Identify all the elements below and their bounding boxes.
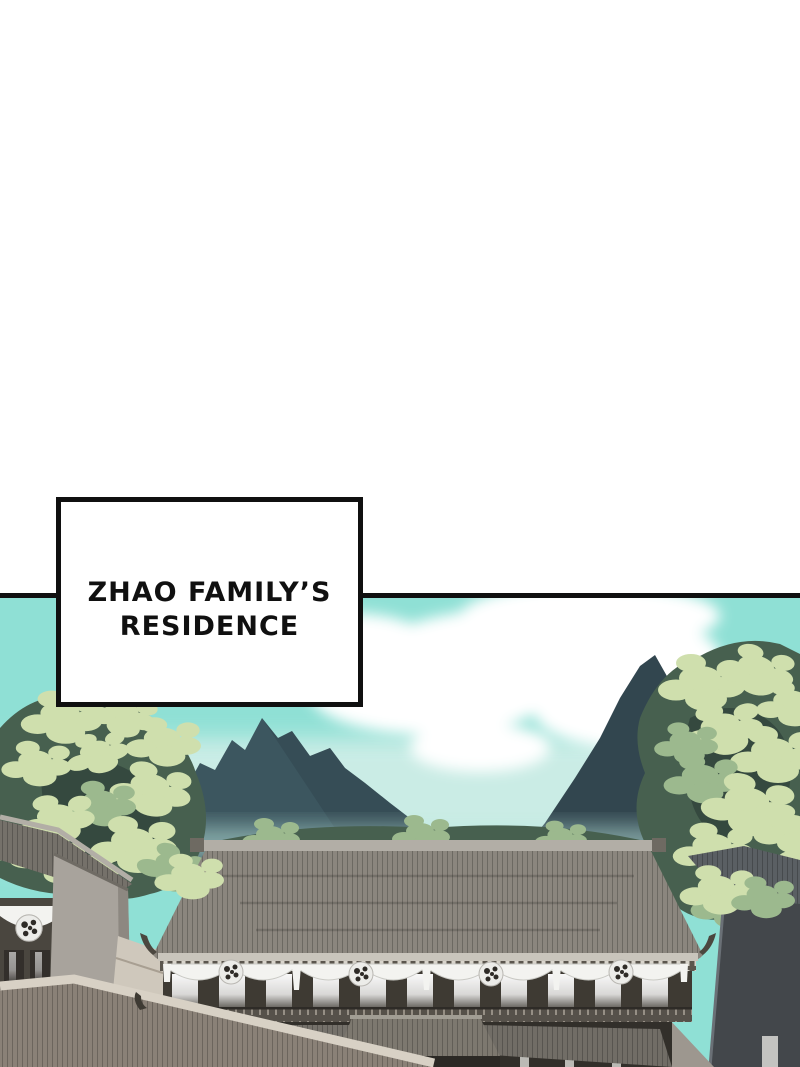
drape-medallion xyxy=(219,960,243,984)
caption-line-1: ZHAO FAMILY’S xyxy=(88,576,332,610)
right-wing-lit-window xyxy=(762,1036,778,1067)
right-wing-wall xyxy=(710,898,800,1067)
comic-page: ZHAO FAMILY’S RESIDENCE xyxy=(0,0,800,1067)
main-roof-ridge xyxy=(190,840,666,851)
left-wing-medallion xyxy=(16,915,42,941)
drape-medallion xyxy=(349,962,373,986)
caption-line-2: RESIDENCE xyxy=(120,610,299,644)
eave-fascia xyxy=(158,953,698,961)
drape-medallion xyxy=(609,960,633,984)
drape-medallion xyxy=(479,962,503,986)
caption-box: ZHAO FAMILY’S RESIDENCE xyxy=(56,497,363,707)
